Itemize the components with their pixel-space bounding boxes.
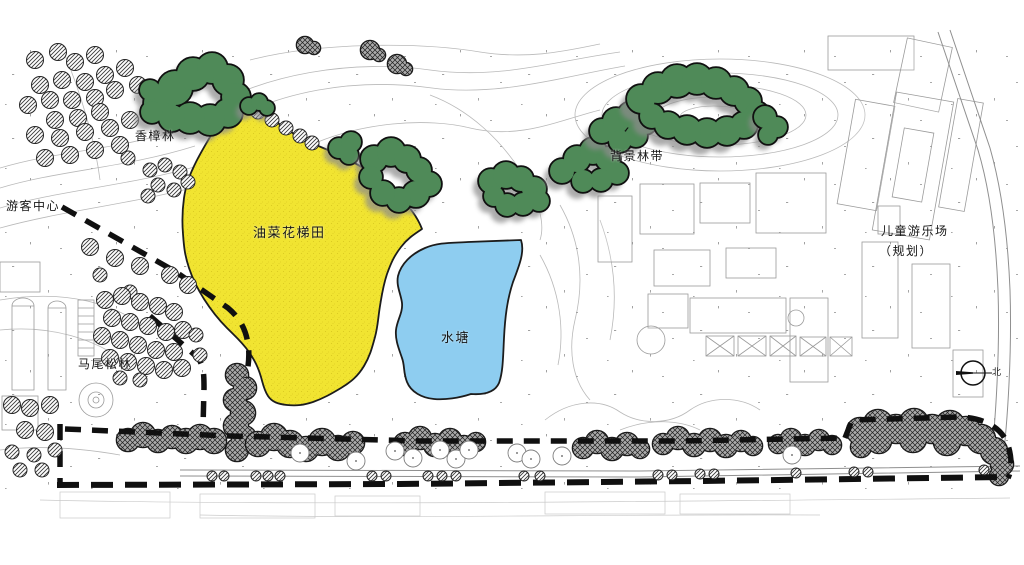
label-background-forest-belt: 背景林带 bbox=[610, 150, 664, 162]
label-camphor-forest: 香樟林 bbox=[135, 130, 176, 142]
label-masson-pine-forest: 马尾松林 bbox=[78, 358, 132, 370]
label-children-playground-planned: （规划） bbox=[879, 245, 933, 257]
label-rapeseed-terraces: 油菜花梯田 bbox=[253, 226, 326, 239]
label-pond: 水塘 bbox=[441, 331, 470, 344]
label-children-playground: 儿童游乐场 bbox=[881, 225, 949, 237]
site-plan-drawing bbox=[0, 0, 1024, 565]
label-north: 北 bbox=[992, 368, 1001, 377]
label-visitor-center: 游客中心 bbox=[6, 200, 60, 212]
site-plan-canvas: 香樟林 游客中心 油菜花梯田 水塘 背景林带 儿童游乐场 （规划） 马尾松林 北 bbox=[0, 0, 1024, 565]
